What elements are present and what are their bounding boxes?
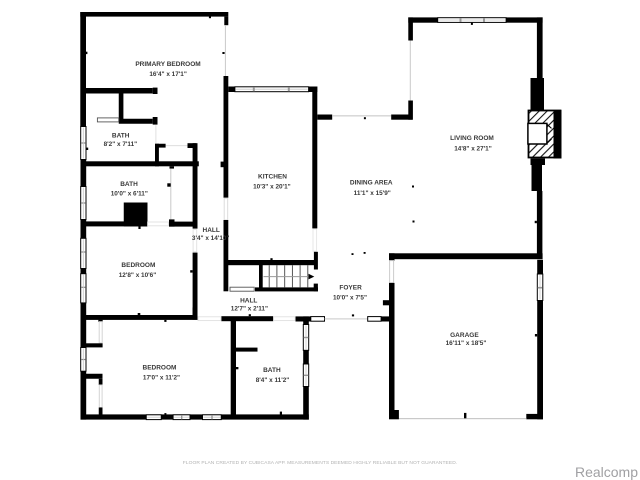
svg-text:16'4" x 17'1": 16'4" x 17'1" <box>149 71 187 78</box>
svg-text:14'8" x 27'1": 14'8" x 27'1" <box>454 145 492 152</box>
svg-text:FOYER: FOYER <box>339 284 362 291</box>
svg-text:8'2" x 7'11": 8'2" x 7'11" <box>104 141 138 148</box>
svg-text:DINING AREA: DINING AREA <box>350 180 393 187</box>
svg-text:16'11" x 18'5": 16'11" x 18'5" <box>446 340 487 347</box>
svg-text:PRIMARY BEDROOM: PRIMARY BEDROOM <box>135 61 200 68</box>
svg-text:BATH: BATH <box>120 181 138 188</box>
svg-text:Realcomp: Realcomp <box>575 464 638 480</box>
svg-text:LIVING ROOM: LIVING ROOM <box>450 135 494 142</box>
svg-text:12'8" x 10'6": 12'8" x 10'6" <box>119 272 157 279</box>
svg-text:FLOOR PLAN CREATED BY CUBICASA: FLOOR PLAN CREATED BY CUBICASA APP. MEAS… <box>183 460 457 466</box>
svg-text:8'4" x 11'2": 8'4" x 11'2" <box>256 377 290 384</box>
svg-text:HALL: HALL <box>240 298 257 305</box>
svg-text:11'1" x 15'9": 11'1" x 15'9" <box>354 190 391 197</box>
svg-text:BATH: BATH <box>263 367 281 374</box>
svg-text:BEDROOM: BEDROOM <box>121 262 155 269</box>
svg-text:KITCHEN: KITCHEN <box>258 173 287 180</box>
svg-text:HALL: HALL <box>203 227 220 234</box>
svg-text:BATH: BATH <box>112 132 130 139</box>
svg-text:GARAGE: GARAGE <box>450 332 479 339</box>
svg-text:10'0" x 7'5": 10'0" x 7'5" <box>333 295 367 302</box>
svg-text:17'0" x 11'2": 17'0" x 11'2" <box>143 374 180 381</box>
svg-text:BEDROOM: BEDROOM <box>143 365 177 372</box>
svg-text:10'0" x 6'11": 10'0" x 6'11" <box>111 191 148 198</box>
svg-text:10'3" x 20'1": 10'3" x 20'1" <box>253 184 291 191</box>
svg-text:3'4" x 14'10": 3'4" x 14'10" <box>192 235 230 242</box>
svg-text:12'7" x 2'11": 12'7" x 2'11" <box>231 306 268 313</box>
